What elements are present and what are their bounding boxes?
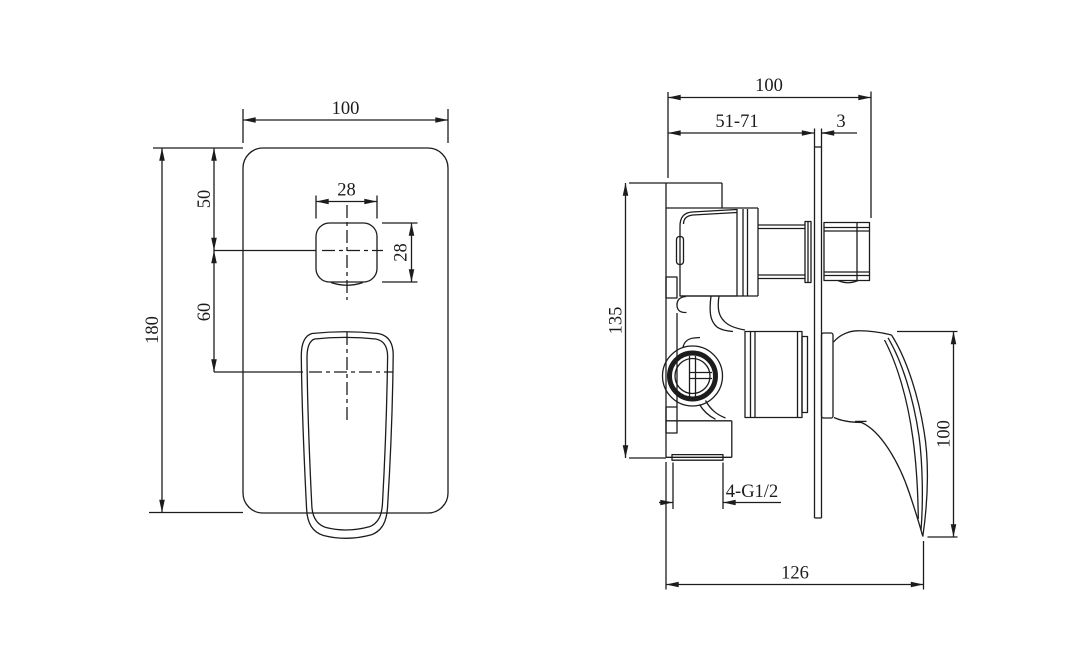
label-button-height: 28	[392, 243, 412, 262]
dim-faceplate-width: 100	[243, 99, 448, 143]
dim-diverter-to-handle-center: 60	[195, 251, 303, 373]
dim-rough-in-range: 51-71	[668, 112, 822, 147]
lever-handle-side	[822, 331, 928, 537]
label-overall-depth: 100	[755, 76, 783, 96]
shower-mixer-technical-drawing: 100 180 50 60 28	[0, 0, 1079, 647]
label-offset-50: 50	[195, 190, 215, 209]
label-button-width: 28	[337, 181, 356, 201]
dim-overall-depth: 100	[668, 76, 871, 218]
label-thread-callout: 4-G1/2	[726, 482, 778, 502]
body-arm-upper	[710, 296, 733, 332]
dim-top-to-diverter-center: 50	[195, 148, 316, 251]
diverter-cartridge-side	[677, 208, 812, 313]
label-plate-height: 180	[143, 316, 163, 344]
body-arm-lower-2	[700, 405, 716, 420]
inlet-port-side	[663, 338, 723, 407]
dim-body-height: 135	[607, 183, 667, 458]
centerlines-front	[309, 205, 394, 423]
valve-body-side	[629, 183, 811, 460]
dim-thread-callout: 4-G1/2	[659, 463, 781, 510]
label-plate-width: 100	[332, 99, 360, 119]
label-body-height: 135	[607, 307, 627, 335]
technical-drawing-page: { "accent_colors": { "line": "#1c1c1c", …	[0, 0, 1079, 647]
dim-overall-reach: 126	[666, 462, 924, 590]
mixer-cartridge-side	[745, 332, 808, 418]
label-plate-thickness: 3	[836, 112, 845, 132]
dim-handle-drop: 100	[897, 332, 958, 538]
dim-plate-thickness: 3	[822, 112, 858, 133]
body-arm-upper-2	[718, 296, 745, 330]
bottom-port-block	[666, 421, 732, 460]
label-handle-drop: 100	[935, 420, 955, 448]
label-rough-in-range: 51-71	[715, 112, 758, 132]
dim-button-height: 28	[382, 223, 418, 282]
front-view: 100 180 50 60 28	[143, 99, 448, 538]
wall-plate-side	[815, 147, 822, 518]
dim-faceplate-height: 180	[143, 148, 243, 513]
side-view: 100 51-71 3 135 100	[607, 76, 958, 590]
label-offset-60: 60	[195, 303, 215, 322]
label-overall-reach: 126	[781, 564, 809, 584]
diverter-button-side	[824, 223, 870, 283]
faceplate	[243, 148, 448, 513]
